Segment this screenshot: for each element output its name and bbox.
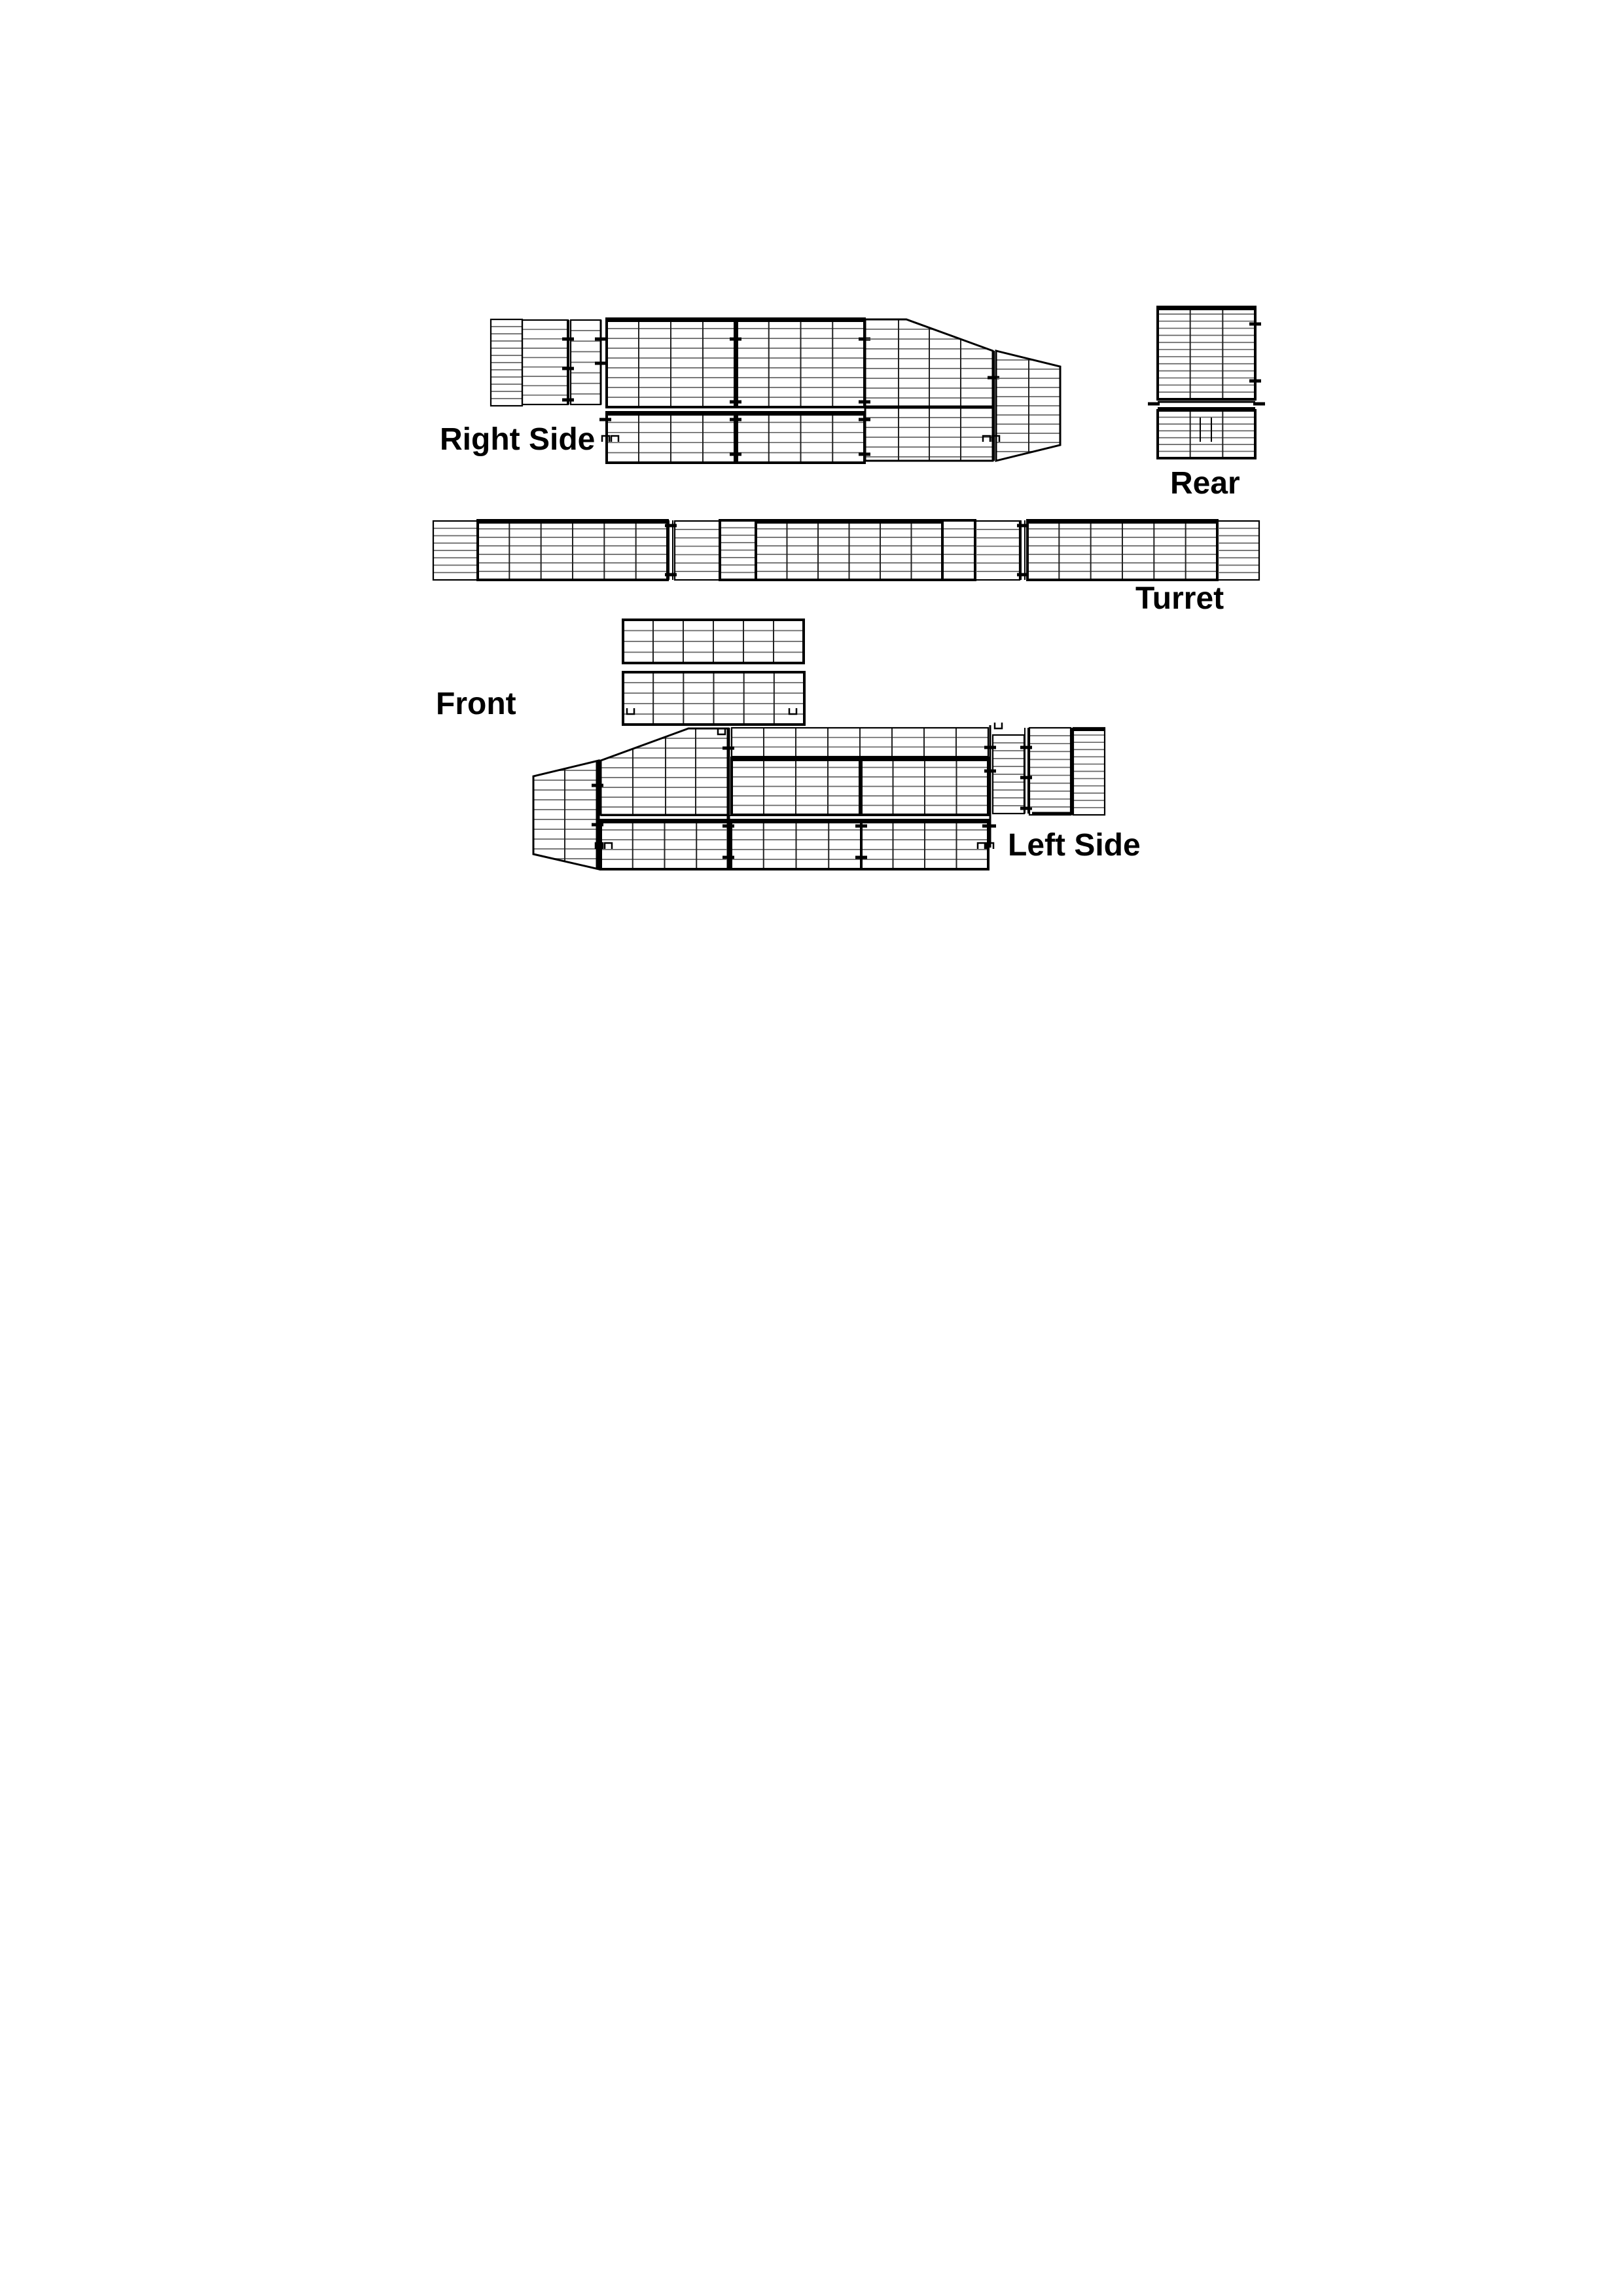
turret-label: Turret [1135,582,1224,617]
front-label: Front [436,687,516,722]
turret-view [433,520,1259,580]
left-side-label: Left Side [1008,829,1141,863]
page: Right Side Rear Turret Front Left Side [0,0,1623,2296]
diagram-canvas [0,0,1623,2296]
rear-view [1148,307,1265,458]
front-view [623,620,804,725]
right-side-label: Right Side [440,423,595,457]
rear-label: Rear [1170,467,1240,501]
